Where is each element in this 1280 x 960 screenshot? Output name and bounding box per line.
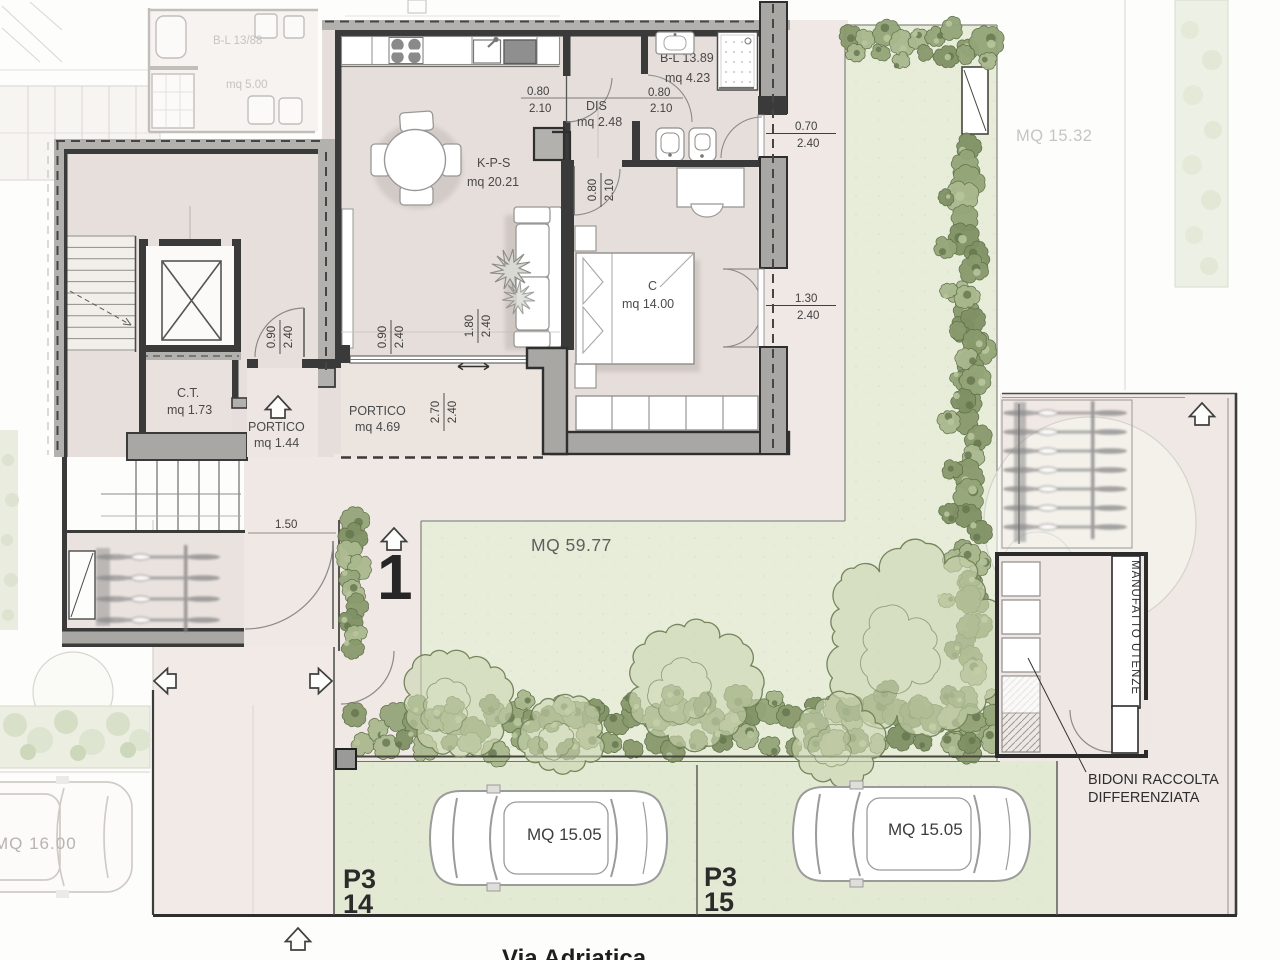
svg-text:MQ 15.32: MQ 15.32 (1016, 127, 1092, 145)
svg-text:15: 15 (704, 887, 734, 917)
svg-text:1.30: 1.30 (795, 293, 817, 305)
svg-text:2.40: 2.40 (797, 138, 819, 150)
svg-text:C: C (648, 279, 657, 293)
svg-text:0.80: 0.80 (527, 86, 549, 98)
svg-text:K-P-S: K-P-S (477, 156, 510, 170)
svg-text:2.40: 2.40 (797, 310, 819, 322)
svg-text:mq 1.73: mq 1.73 (167, 403, 212, 417)
svg-text:DIS: DIS (586, 99, 607, 113)
svg-text:mq 2.48: mq 2.48 (577, 115, 622, 129)
svg-text:MQ 59.77: MQ 59.77 (531, 535, 612, 555)
svg-text:MQ 16.00: MQ 16.00 (0, 834, 77, 853)
svg-text:MQ 15.05: MQ 15.05 (888, 820, 963, 839)
svg-text:0.90: 0.90 (266, 326, 278, 348)
svg-text:BIDONI RACCOLTA: BIDONI RACCOLTA (1088, 772, 1219, 788)
svg-text:mq 1.44: mq 1.44 (254, 436, 299, 450)
svg-text:PORTICO: PORTICO (349, 404, 406, 418)
svg-text:2.70: 2.70 (430, 401, 442, 423)
svg-text:DIFFERENZIATA: DIFFERENZIATA (1088, 790, 1200, 806)
svg-text:mq 4.69: mq 4.69 (355, 420, 400, 434)
svg-text:2.40: 2.40 (394, 326, 406, 348)
svg-text:mq 14.00: mq 14.00 (622, 297, 674, 311)
svg-text:mq 20.21: mq 20.21 (467, 175, 519, 189)
svg-text:2.40: 2.40 (481, 315, 493, 337)
svg-text:0.80: 0.80 (648, 87, 670, 99)
svg-text:2.10: 2.10 (604, 179, 616, 201)
svg-text:mq 5.00: mq 5.00 (226, 79, 268, 91)
svg-text:PORTICO: PORTICO (248, 420, 305, 434)
svg-text:1.80: 1.80 (464, 315, 476, 337)
svg-text:MANUFATTO UTENZE: MANUFATTO UTENZE (1129, 560, 1141, 695)
svg-text:14: 14 (343, 889, 373, 919)
svg-text:1.50: 1.50 (275, 519, 297, 531)
svg-text:C.T.: C.T. (177, 386, 199, 400)
svg-text:2.40: 2.40 (283, 326, 295, 348)
svg-text:0.80: 0.80 (587, 179, 599, 201)
svg-text:Via Adriatica: Via Adriatica (502, 945, 647, 960)
svg-text:mq 4.23: mq 4.23 (665, 71, 710, 85)
svg-text:MQ 15.05: MQ 15.05 (527, 825, 602, 844)
svg-text:B-L 13/88: B-L 13/88 (213, 35, 262, 47)
svg-text:0.70: 0.70 (795, 121, 817, 133)
svg-text:2.10: 2.10 (529, 103, 551, 115)
svg-text:1: 1 (377, 541, 413, 613)
svg-text:2.40: 2.40 (447, 401, 459, 423)
svg-text:2.10: 2.10 (650, 103, 672, 115)
svg-text:0.90: 0.90 (377, 326, 389, 348)
